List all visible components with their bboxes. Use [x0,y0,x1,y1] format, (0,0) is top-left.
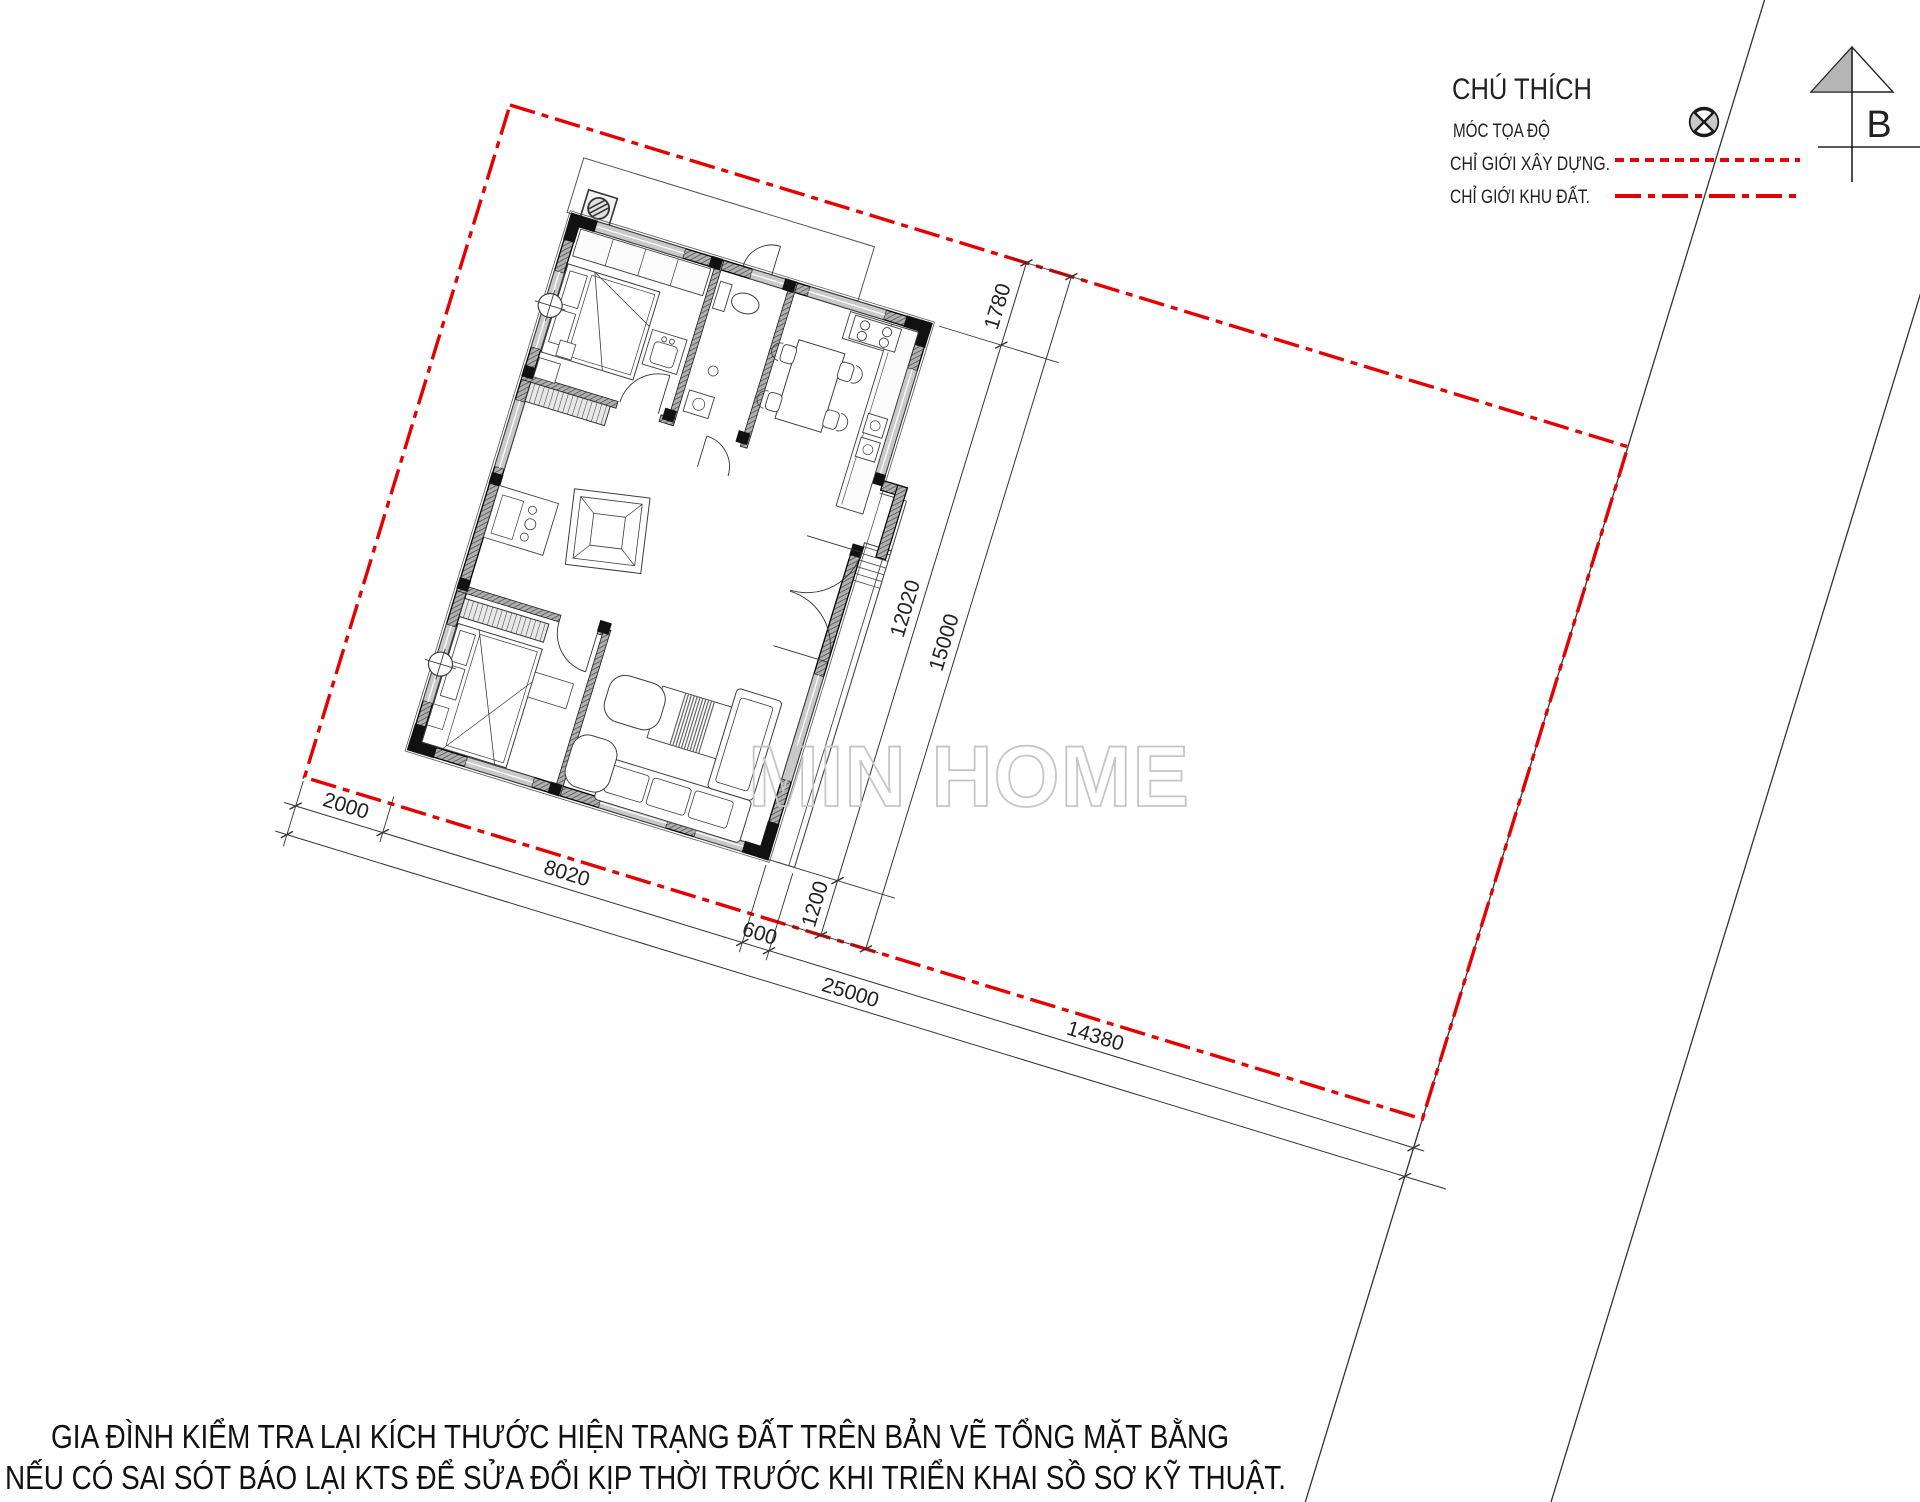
svg-text:CHÚ THÍCH: CHÚ THÍCH [1452,73,1592,106]
svg-text:CHỈ GIỚI XÂY DỰNG.: CHỈ GIỚI XÂY DỰNG. [1450,153,1610,175]
svg-text:MÓC TỌA ĐỘ: MÓC TỌA ĐỘ [1453,120,1550,142]
svg-text:B: B [1866,104,1891,146]
svg-text:CHỈ GIỚI KHU ĐẤT.: CHỈ GIỚI KHU ĐẤT. [1450,186,1590,208]
svg-text:NẾU CÓ SAI SÓT BÁO LẠI KTS ĐỂ: NẾU CÓ SAI SÓT BÁO LẠI KTS ĐỂ SỬA ĐỔI KỊ… [5,1459,1286,1496]
svg-text:MIN HOME: MIN HOME [748,729,1190,825]
svg-text:GIA ĐÌNH KIỂM TRA LẠI KÍCH THƯ: GIA ĐÌNH KIỂM TRA LẠI KÍCH THƯỚC HIỆN TR… [51,1418,1229,1455]
